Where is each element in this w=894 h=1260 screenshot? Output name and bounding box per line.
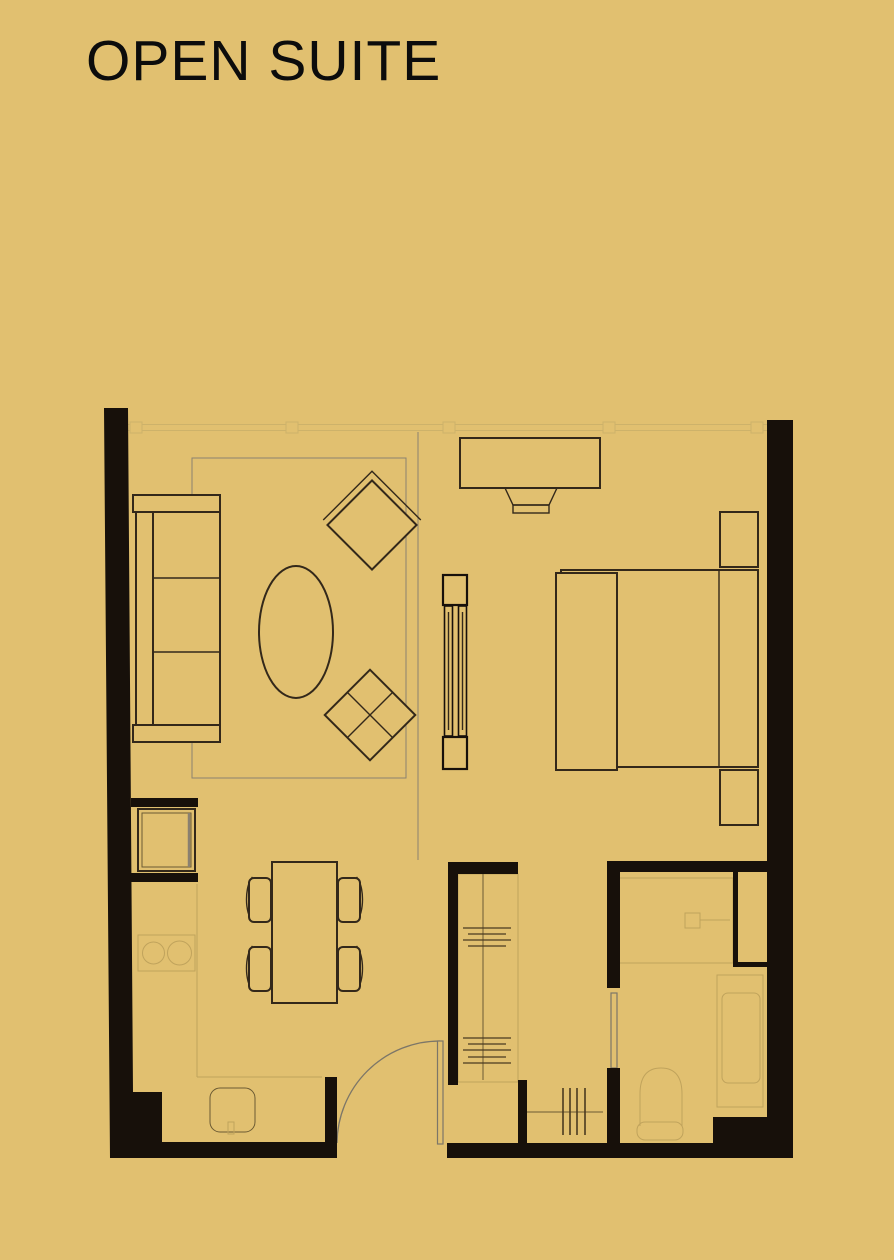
bed	[556, 570, 758, 770]
refrigerator	[138, 809, 195, 871]
wall-shaft-left	[733, 872, 738, 967]
ottoman-side-table	[325, 670, 416, 761]
sofa-seat	[153, 512, 220, 725]
dining-table	[272, 862, 337, 1003]
window-mullion	[603, 422, 615, 433]
bed-blanket	[556, 573, 617, 770]
wall-closet-left	[448, 862, 458, 1085]
door-swing-arc	[337, 1041, 440, 1143]
tv	[505, 488, 557, 513]
wall-shaft-bottom	[733, 962, 767, 967]
door-leaf	[438, 1041, 444, 1144]
cooktop	[138, 935, 195, 971]
window-mullion	[751, 422, 763, 433]
window-mullion	[286, 422, 298, 433]
pocket-door	[611, 993, 617, 1068]
kitchen-sink	[210, 1088, 255, 1134]
wall-bathroom-left-upper	[607, 861, 620, 988]
floor-plan-page: OPEN SUITE	[0, 0, 894, 1260]
wardrobe	[458, 874, 518, 1082]
shoe-rack	[526, 1088, 603, 1135]
wall-fridge-niche-top	[131, 798, 198, 807]
window-mullion	[130, 422, 142, 433]
dining-chair	[247, 946, 272, 991]
window-mullion	[443, 422, 455, 433]
coffee-table	[259, 566, 333, 698]
nightstand	[720, 512, 758, 567]
shower	[618, 878, 733, 963]
wall-closet-top	[448, 862, 518, 874]
bathtub	[717, 975, 763, 1107]
dining-chair	[338, 877, 363, 922]
sofa-armrest	[133, 725, 220, 742]
sofa-back	[136, 512, 153, 725]
dining-chair	[338, 946, 363, 991]
wall-fridge-niche-bottom	[131, 873, 198, 882]
entry-door	[337, 1041, 443, 1144]
window-wall	[128, 422, 767, 433]
floor-plan-drawing	[0, 0, 894, 1260]
wall-bathroom-top	[607, 861, 767, 872]
wall-closet-right-stub	[518, 1080, 527, 1147]
room-divider	[443, 575, 467, 769]
sofa	[133, 495, 220, 742]
dining-chair	[247, 877, 272, 922]
wall-bathroom-left-lower	[607, 1068, 620, 1147]
toilet	[637, 1068, 683, 1140]
tv-console	[460, 438, 600, 488]
shower-head	[685, 913, 700, 928]
nightstand	[720, 770, 758, 825]
sofa-armrest	[133, 495, 220, 512]
